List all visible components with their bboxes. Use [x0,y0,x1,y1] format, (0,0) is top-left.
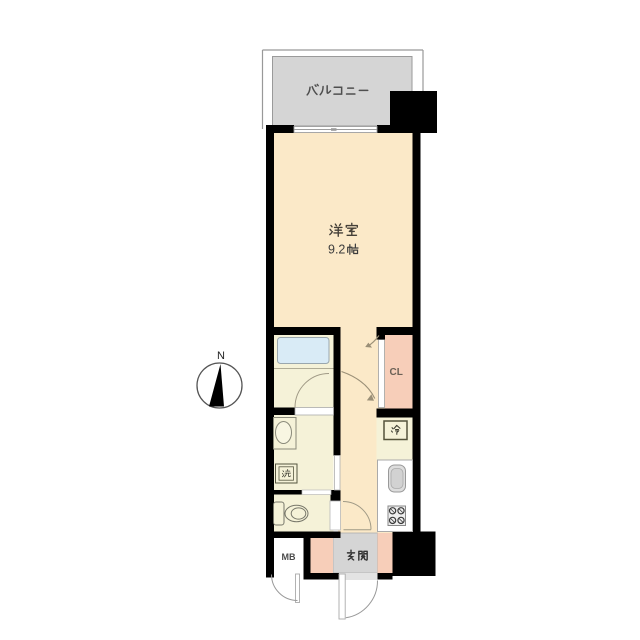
svg-text:MB: MB [282,552,296,562]
svg-text:9.2: 9.2 [328,243,345,257]
svg-text:N: N [217,350,225,362]
svg-text:CL: CL [390,367,403,378]
